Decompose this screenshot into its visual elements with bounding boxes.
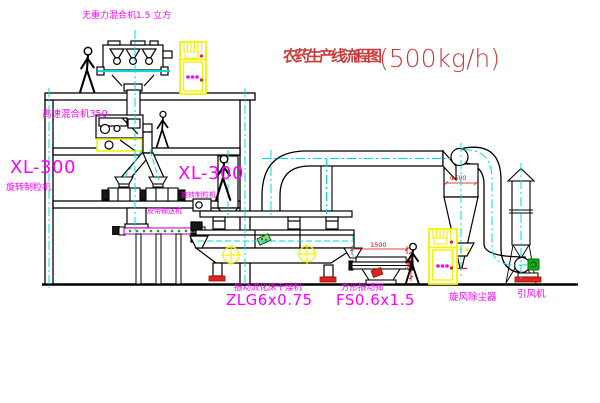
granulator-center-name-label: 旋转制粒机 <box>181 192 216 199</box>
bucket-elevator-drawing <box>180 42 206 94</box>
cyclone-inlet-dim: Φ500 <box>450 175 466 182</box>
person-figure-2 <box>157 111 168 147</box>
exhaust-elbow-duct-drawing <box>262 151 443 216</box>
belt-conveyor-label: 皮带输送机 <box>147 208 182 215</box>
gravity-mixer-label: 无重力混合机1.5 立方 <box>82 12 171 21</box>
dryer-model-label: ZLG6x0.75 <box>226 293 313 308</box>
discharge-column-drawing <box>125 208 148 228</box>
granulator-left-model-label: XL-300 <box>10 159 76 177</box>
granulator-center-model-label: XL-300 <box>178 165 244 183</box>
person-figure-1 <box>80 47 94 92</box>
mixer-drop-pipe-drawing <box>127 90 140 116</box>
fan-label: 引风机 <box>517 290 546 300</box>
granulator-left-drawing <box>102 177 146 201</box>
induced-draft-fan-drawing <box>515 258 542 283</box>
page-title: 农药生产线流程图(500kg/h) <box>283 46 500 71</box>
control-cabinet-drawing <box>429 229 457 284</box>
title-capacity: (500kg/h) <box>379 44 500 73</box>
title-chinese: 农药生产线流程图 <box>283 47 379 65</box>
sieve-model-label: FS0.6x1.5 <box>336 293 415 308</box>
diagram-canvas: 1500 545 Φ500 农药生产线流程图(500kg/h) 无重力混合机1.… <box>0 0 600 403</box>
granulator-left-name-label: 旋转制粒机 <box>6 184 51 193</box>
high-speed-mixer-label: 高速混合机350 <box>42 110 108 120</box>
cyclone-label: 旋风除尘器 <box>449 293 497 303</box>
sieve-width-dim: 1500 <box>370 241 387 249</box>
vibrating-sieve-drawing <box>344 248 413 284</box>
